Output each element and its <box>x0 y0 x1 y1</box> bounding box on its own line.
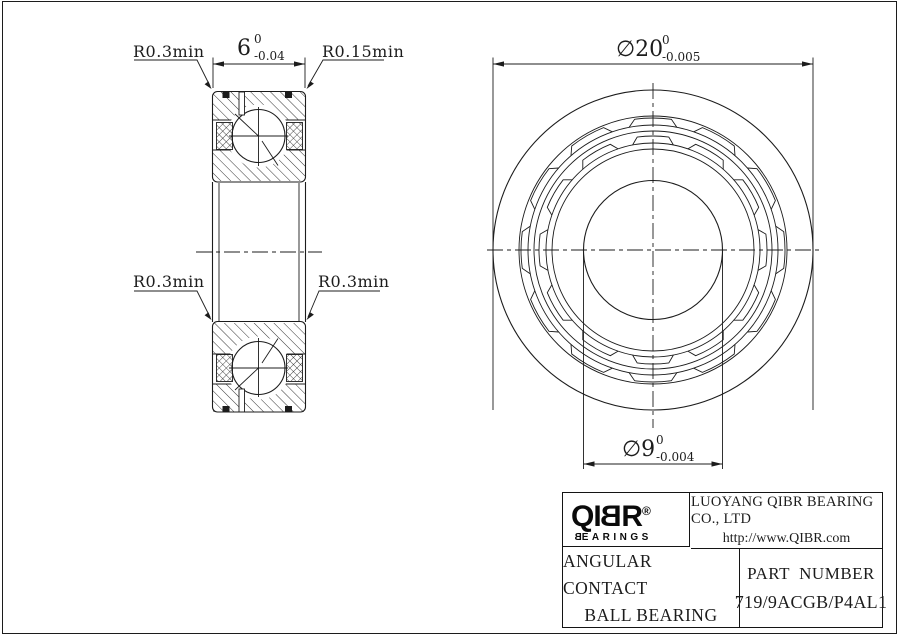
company-website[interactable]: http://www.QIBR.com <box>723 531 850 547</box>
cage-section <box>287 355 303 382</box>
ball-pocket <box>531 291 559 332</box>
title-block: QIBR® BEARINGS LUOYANG QIBR BEARING CO.,… <box>562 492 883 628</box>
product-name-line1: ANGULAR CONTACT <box>563 548 739 602</box>
drawing-sheet: 6 0 -0.04 R0.3min R0.15min R0.3min <box>0 0 900 636</box>
fillet-leader-mid-left: R0.3min <box>133 272 212 320</box>
company-cell: LUOYANG QIBR BEARING CO., LTD http://www… <box>691 493 882 549</box>
qibr-logo: QIBR® <box>571 497 651 531</box>
product-name-line2: BALL BEARING <box>584 602 717 629</box>
rivet <box>223 406 230 412</box>
ball-pocket <box>571 128 612 156</box>
front-view: ∅20 0 -0.005 ∅9 0 -0.004 <box>487 33 819 469</box>
company-name: LUOYANG QIBR BEARING CO., LTD <box>691 494 882 528</box>
registered-mark-icon: ® <box>642 504 651 518</box>
part-number-value: 719/9ACGB/P4AL1 <box>735 592 888 613</box>
fillet-label: R0.3min <box>133 272 205 291</box>
bore-tol-upper: 0 <box>656 433 664 447</box>
cage-gap <box>239 92 245 115</box>
logo-subtitle: BEARINGS <box>571 532 652 543</box>
rivet <box>223 92 230 98</box>
part-number-label: PART NUMBER <box>747 564 875 584</box>
rivet <box>285 406 292 412</box>
fillet-leader-top-right: R0.15min <box>307 42 405 89</box>
fillet-label: R0.3min <box>133 42 205 61</box>
fillet-leader-top-left: R0.3min <box>133 42 212 89</box>
rivet <box>285 92 292 98</box>
cage-section <box>217 123 233 150</box>
ball-pocket <box>531 168 559 209</box>
part-number-cell: PART NUMBER 719/9ACGB/P4AL1 <box>740 549 882 627</box>
od-tol-upper: 0 <box>662 33 670 47</box>
cage-gap <box>239 389 245 412</box>
width-dimension: 6 0 -0.04 <box>213 32 305 88</box>
fillet-label: R0.15min <box>322 42 404 61</box>
cage-outer-rim-inner-circle <box>534 131 772 369</box>
cage-section <box>287 123 303 150</box>
fillet-leader-mid-right: R0.3min <box>307 272 390 320</box>
bore-tol-lower: -0.004 <box>656 450 695 464</box>
section-top-half <box>213 92 306 183</box>
width-tol-lower: -0.04 <box>254 49 285 63</box>
ball-pocket <box>571 344 612 372</box>
width-tol-upper: 0 <box>254 32 262 46</box>
cage-section <box>217 355 233 382</box>
section-bottom-half <box>213 322 306 413</box>
product-cell: ANGULAR CONTACT BALL BEARING <box>563 549 740 627</box>
outer-diameter-circle <box>493 90 813 410</box>
section-view: 6 0 -0.04 R0.3min R0.15min R0.3min <box>133 32 404 412</box>
od-value: ∅20 <box>616 37 663 62</box>
ball-pocket <box>694 344 735 372</box>
fillet-label: R0.3min <box>318 272 390 291</box>
ball-pocket <box>747 291 775 332</box>
ball-pocket <box>694 128 735 156</box>
logo-cell: QIBR® BEARINGS <box>563 493 690 547</box>
ball-pocket <box>747 168 775 209</box>
width-value: 6 <box>237 36 251 61</box>
od-tol-lower: -0.005 <box>662 50 700 64</box>
bore-value: ∅9 <box>622 437 655 462</box>
